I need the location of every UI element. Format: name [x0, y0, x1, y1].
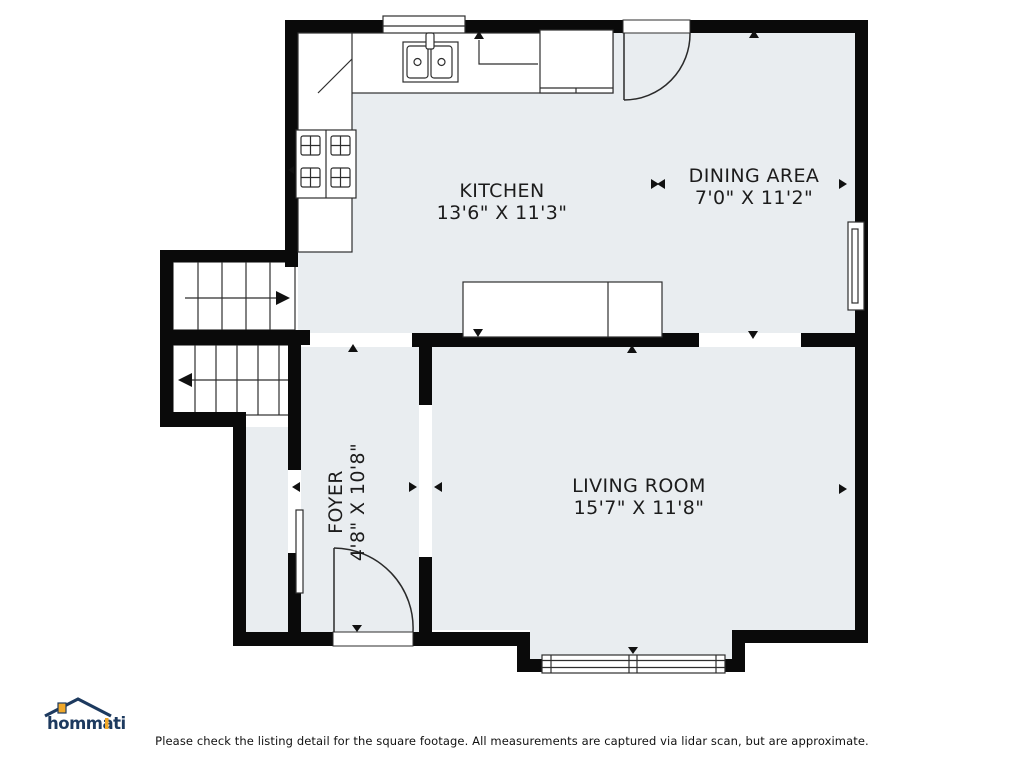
foyer-name: FOYER — [325, 470, 347, 534]
faucet-icon — [426, 33, 434, 49]
living-room-label: LIVING ROOM 15'7" X 11'8" — [572, 475, 706, 519]
foyer-sidelight-window — [296, 510, 303, 593]
kitchen-peninsula-counter — [463, 282, 662, 337]
wall-foyer-living-lower — [419, 557, 432, 632]
opening-dining-living — [699, 333, 801, 347]
floor-plan-canvas: hommati KITCHEN 13'6" X 11'3" DINING ARE… — [0, 0, 1024, 768]
wall-stairs-top — [160, 250, 298, 262]
kitchen-label: KITCHEN 13'6" X 11'3" — [437, 180, 568, 224]
dining-window — [848, 222, 864, 310]
disclaimer-text: Please check the listing detail for the … — [0, 734, 1024, 748]
dining-area-label: DINING AREA 7'0" X 11'2" — [689, 165, 820, 209]
foyer-label: FOYER 4'8" X 10'8" — [325, 443, 369, 561]
hommati-logo: hommati — [45, 699, 126, 733]
logo-chimney-icon — [58, 703, 66, 713]
opening-foyer-living — [419, 405, 432, 557]
wall-right — [855, 20, 868, 643]
staircase-lower — [173, 345, 297, 415]
stove — [296, 130, 356, 198]
refrigerator — [540, 30, 613, 93]
wall-foyer-inner-upper — [288, 333, 301, 470]
wall-stairs-mid — [160, 330, 310, 345]
opening-foyer-top — [310, 333, 412, 347]
dining-door-opening — [623, 20, 690, 33]
dining-area-name: DINING AREA — [689, 165, 820, 187]
wall-bottom-right — [732, 630, 868, 643]
floor-plan-drawing: hommati — [0, 0, 1024, 768]
staircase-upper — [173, 262, 295, 330]
wall-foyer-left-outer — [233, 412, 246, 646]
living-room-dims: 15'7" X 11'8" — [572, 497, 706, 519]
wall-foyer-living-upper — [419, 333, 432, 405]
wall-dining-living-stub — [801, 333, 855, 347]
foyer-dims: 4'8" X 10'8" — [347, 443, 369, 561]
logo-wordmark: hommati — [47, 714, 126, 733]
kitchen-name: KITCHEN — [459, 180, 544, 202]
dining-area-dims: 7'0" X 11'2" — [689, 187, 820, 209]
living-room-name: LIVING ROOM — [572, 475, 706, 497]
front-door-threshold — [333, 632, 413, 646]
bay-window — [542, 655, 725, 673]
kitchen-dims: 13'6" X 11'3" — [437, 202, 568, 224]
logo-accent-mark — [105, 718, 109, 729]
